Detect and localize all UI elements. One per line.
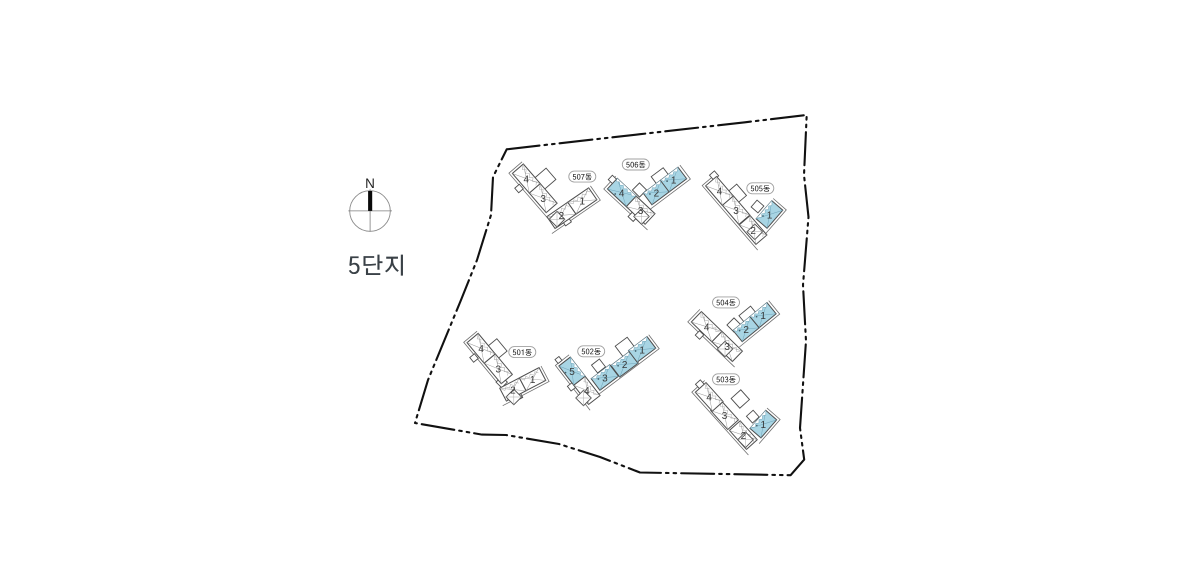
svg-text:3: 3 <box>540 194 546 205</box>
svg-text:4: 4 <box>619 188 625 199</box>
svg-text:4: 4 <box>478 344 484 355</box>
svg-text:1: 1 <box>530 375 536 386</box>
svg-text:3: 3 <box>722 411 728 422</box>
svg-text:N: N <box>365 176 375 191</box>
svg-text:2: 2 <box>654 188 660 199</box>
svg-text:3: 3 <box>602 373 608 384</box>
svg-text:3: 3 <box>724 342 730 353</box>
svg-text:4: 4 <box>524 174 530 185</box>
svg-text:2: 2 <box>510 385 516 396</box>
svg-text:2: 2 <box>741 431 747 442</box>
svg-text:2: 2 <box>750 226 756 237</box>
svg-text:1: 1 <box>639 345 645 356</box>
svg-text:4: 4 <box>704 322 710 333</box>
svg-text:1: 1 <box>760 311 766 322</box>
svg-text:1: 1 <box>767 210 773 221</box>
svg-text:4: 4 <box>584 386 590 397</box>
svg-text:1: 1 <box>580 197 586 208</box>
svg-text:3: 3 <box>496 365 502 376</box>
svg-text:2: 2 <box>622 360 628 371</box>
svg-text:2: 2 <box>743 325 749 336</box>
svg-text:4: 4 <box>706 393 712 404</box>
svg-text:1: 1 <box>761 420 767 431</box>
svg-text:3: 3 <box>733 206 739 217</box>
svg-text:1: 1 <box>671 175 677 186</box>
svg-text:4: 4 <box>717 187 723 198</box>
svg-text:5: 5 <box>569 367 575 378</box>
svg-text:3: 3 <box>638 206 644 217</box>
svg-text:2: 2 <box>559 211 565 222</box>
